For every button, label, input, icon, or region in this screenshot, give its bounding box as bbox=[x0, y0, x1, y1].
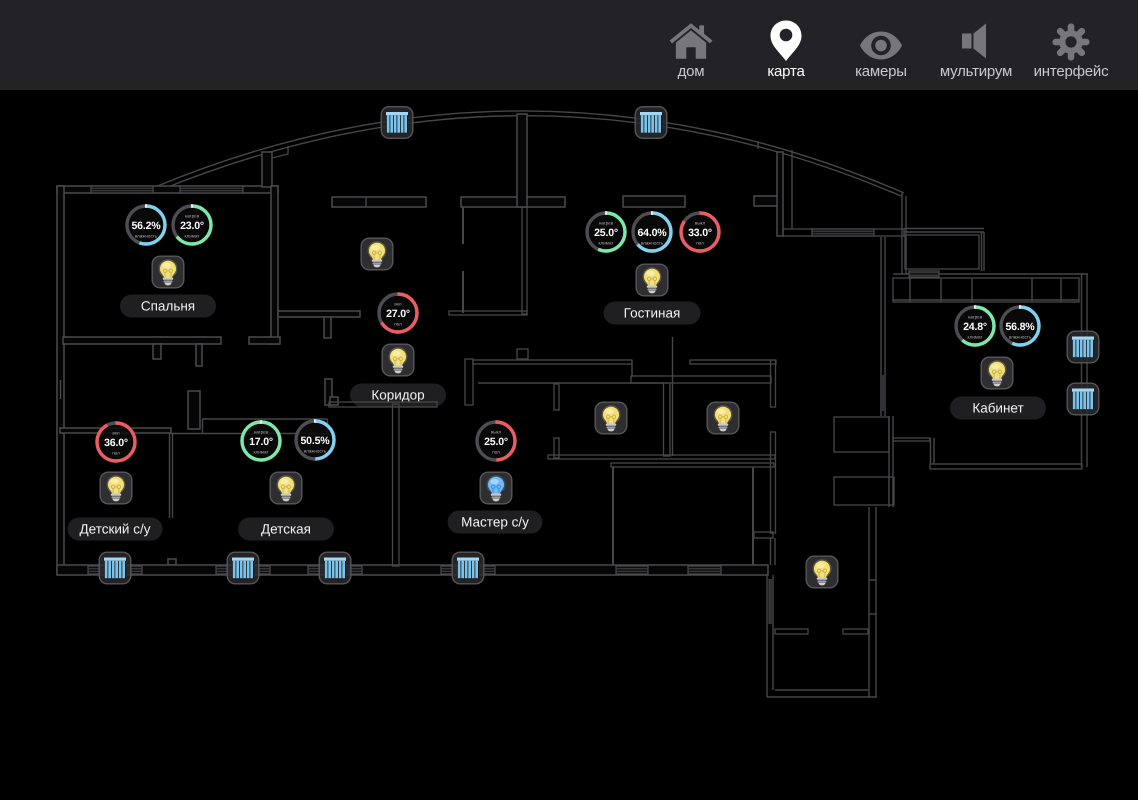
svg-text:56.8%: 56.8% bbox=[1005, 321, 1035, 333]
svg-text:пол: пол bbox=[394, 322, 402, 327]
svg-text:пол: пол bbox=[112, 451, 120, 456]
svg-text:климат: климат bbox=[253, 450, 269, 455]
svg-text:23.0°: 23.0° bbox=[180, 220, 204, 232]
svg-text:влажность: влажность bbox=[304, 449, 327, 454]
svg-text:нагрев: нагрев bbox=[254, 430, 269, 435]
svg-text:влажность: влажность bbox=[135, 234, 158, 239]
svg-text:36.0°: 36.0° bbox=[104, 437, 128, 449]
svg-text:56.2%: 56.2% bbox=[131, 220, 161, 232]
svg-text:Кабинет: Кабинет bbox=[972, 401, 1023, 416]
svg-text:нагрев: нагрев bbox=[599, 221, 614, 226]
svg-text:нагрев: нагрев bbox=[968, 315, 983, 320]
svg-text:Мастер с/у: Мастер с/у bbox=[461, 515, 529, 530]
svg-text:Гостиная: Гостиная bbox=[624, 306, 681, 321]
svg-text:влажность: влажность bbox=[641, 241, 664, 246]
svg-text:64.0%: 64.0% bbox=[637, 227, 667, 239]
svg-text:климат: климат bbox=[967, 335, 983, 340]
svg-text:нагрев: нагрев bbox=[185, 214, 200, 219]
svg-text:выкл: выкл bbox=[491, 430, 502, 435]
svg-text:50.5%: 50.5% bbox=[300, 435, 330, 447]
svg-text:25.0°: 25.0° bbox=[484, 436, 508, 448]
svg-text:Детский с/у: Детский с/у bbox=[80, 522, 151, 537]
svg-text:пол: пол bbox=[696, 241, 704, 246]
svg-text:25.0°: 25.0° bbox=[594, 227, 618, 239]
svg-text:вкл: вкл bbox=[394, 302, 402, 307]
svg-text:выкл: выкл bbox=[695, 221, 706, 226]
svg-text:вкл: вкл bbox=[112, 431, 120, 436]
svg-text:17.0°: 17.0° bbox=[249, 436, 273, 448]
svg-text:Коридор: Коридор bbox=[371, 388, 424, 403]
svg-text:климат: климат bbox=[598, 241, 614, 246]
svg-text:24.8°: 24.8° bbox=[963, 321, 987, 333]
svg-text:Детская: Детская bbox=[261, 522, 311, 537]
svg-text:климат: климат bbox=[184, 234, 200, 239]
svg-text:27.0°: 27.0° bbox=[386, 308, 410, 320]
svg-text:пол: пол bbox=[492, 450, 500, 455]
svg-text:33.0°: 33.0° bbox=[688, 227, 712, 239]
svg-text:Спальня: Спальня bbox=[141, 299, 195, 314]
svg-text:влажность: влажность bbox=[1009, 335, 1032, 340]
